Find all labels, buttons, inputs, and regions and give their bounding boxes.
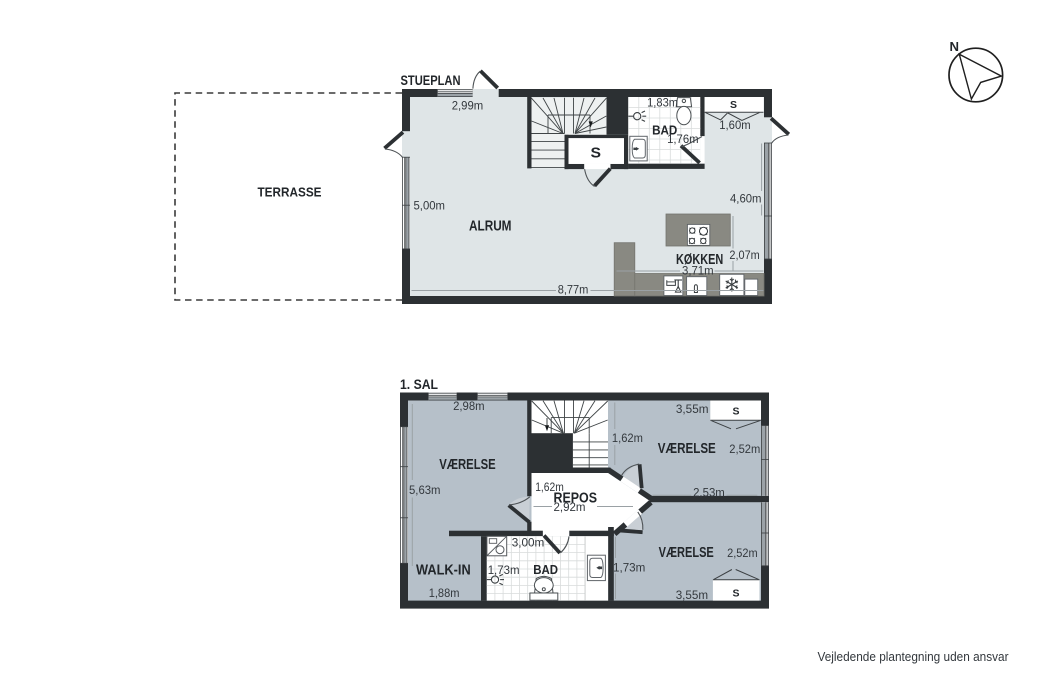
svg-text:2,07m: 2,07m <box>729 248 759 262</box>
svg-text:WALK-IN: WALK-IN <box>416 563 471 579</box>
svg-text:S: S <box>733 588 740 599</box>
svg-text:REPOS: REPOS <box>554 490 598 506</box>
svg-text:3,55m: 3,55m <box>676 588 708 602</box>
svg-text:3,00m: 3,00m <box>512 536 545 550</box>
svg-text:1,83m: 1,83m <box>647 96 678 110</box>
svg-text:STUEPLAN: STUEPLAN <box>401 73 461 89</box>
svg-text:Vejledende plantegning uden an: Vejledende plantegning uden ansvar <box>818 649 1010 664</box>
svg-text:BAD: BAD <box>533 562 558 577</box>
svg-text:2,52m: 2,52m <box>727 546 758 560</box>
svg-text:VÆRELSE: VÆRELSE <box>659 544 714 561</box>
svg-text:1,60m: 1,60m <box>719 118 750 132</box>
svg-text:1,62m: 1,62m <box>612 431 643 445</box>
svg-text:ALRUM: ALRUM <box>469 218 512 235</box>
svg-text:S: S <box>730 100 737 111</box>
svg-text:S: S <box>591 145 602 162</box>
svg-text:VÆRELSE: VÆRELSE <box>658 440 716 457</box>
svg-text:2,52m: 2,52m <box>729 442 760 456</box>
svg-text:BAD: BAD <box>652 122 677 137</box>
svg-text:3,55m: 3,55m <box>676 402 709 416</box>
svg-text:8,77m: 8,77m <box>558 282 589 296</box>
svg-text:TERRASSE: TERRASSE <box>258 185 322 199</box>
svg-text:5,00m: 5,00m <box>414 199 446 213</box>
svg-text:5,63m: 5,63m <box>409 483 441 497</box>
svg-text:2,98m: 2,98m <box>453 399 485 413</box>
svg-text:2,99m: 2,99m <box>452 98 484 112</box>
svg-text:1. SAL: 1. SAL <box>400 377 438 393</box>
svg-text:2,53m: 2,53m <box>693 485 725 499</box>
svg-text:VÆRELSE: VÆRELSE <box>439 456 496 473</box>
svg-text:1,73m: 1,73m <box>613 560 645 574</box>
svg-text:KØKKEN: KØKKEN <box>676 252 723 268</box>
svg-text:1,73m: 1,73m <box>488 563 520 577</box>
svg-text:4,60m: 4,60m <box>730 192 762 206</box>
svg-text:N: N <box>950 39 960 54</box>
svg-text:S: S <box>733 406 740 417</box>
svg-text:1,88m: 1,88m <box>429 586 460 600</box>
